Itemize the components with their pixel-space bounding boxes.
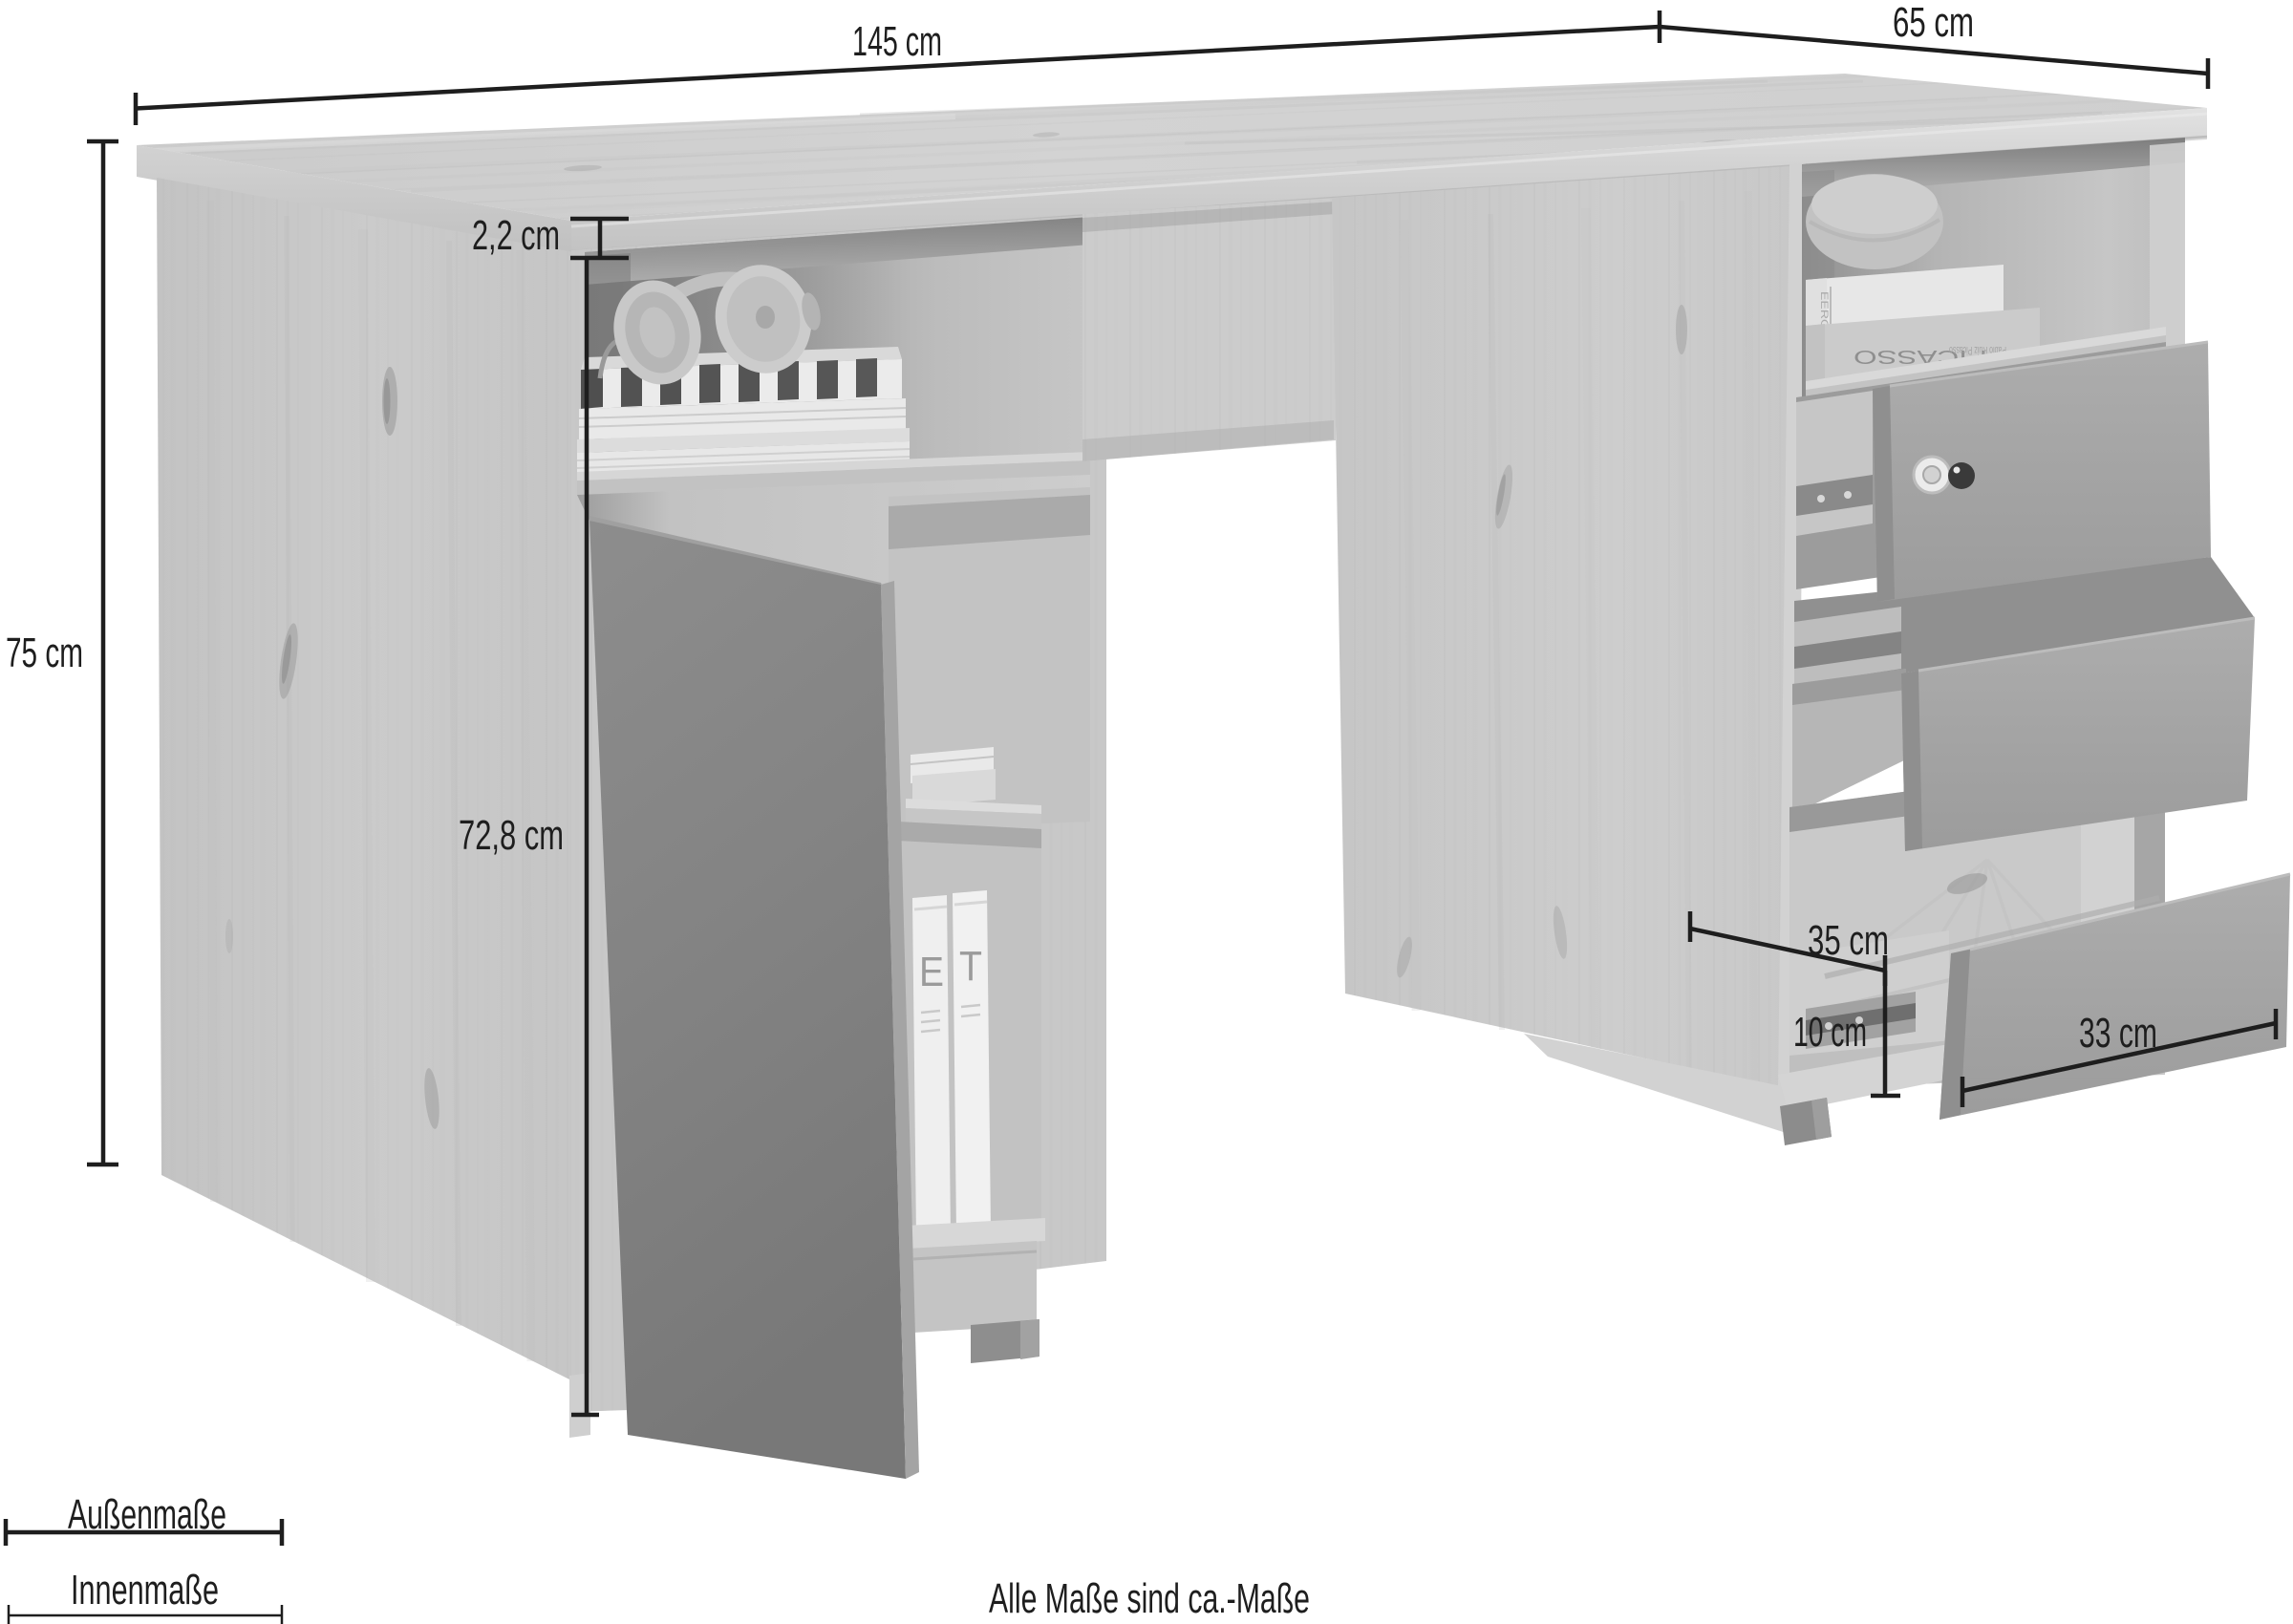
svg-text:T: T — [959, 943, 982, 990]
svg-text:E: E — [919, 949, 944, 995]
svg-text:72,8 cm: 72,8 cm — [459, 812, 564, 859]
svg-text:145 cm: 145 cm — [852, 18, 942, 65]
svg-text:2,2 cm: 2,2 cm — [472, 212, 560, 259]
svg-text:65 cm: 65 cm — [1893, 0, 1974, 46]
svg-text:75 cm: 75 cm — [6, 630, 83, 676]
svg-text:Innenmaße: Innenmaße — [71, 1567, 219, 1613]
svg-text:10 cm: 10 cm — [1793, 1009, 1867, 1056]
svg-text:33 cm: 33 cm — [2079, 1010, 2157, 1057]
svg-text:Alle Maße sind ca.-Maße: Alle Maße sind ca.-Maße — [989, 1575, 1310, 1622]
svg-text:35 cm: 35 cm — [1808, 917, 1889, 964]
